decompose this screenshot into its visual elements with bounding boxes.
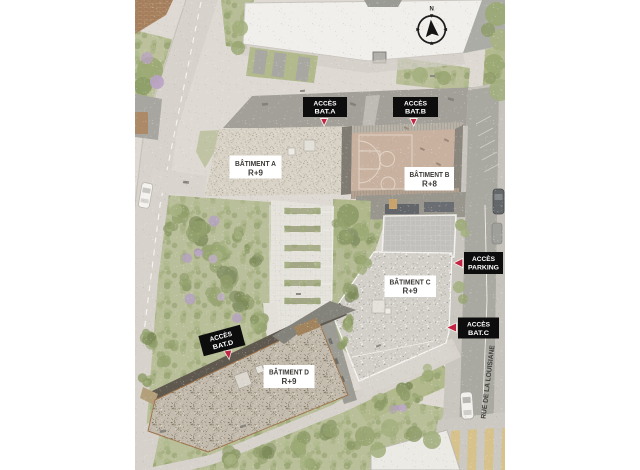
- svg-text:BÂTIMENT C: BÂTIMENT C: [390, 278, 431, 287]
- svg-text:PARKING: PARKING: [468, 265, 499, 272]
- svg-text:R+9: R+9: [282, 377, 297, 386]
- svg-text:BAT.C: BAT.C: [468, 330, 489, 337]
- svg-text:ACCÈS: ACCÈS: [472, 254, 496, 263]
- svg-text:BAT.B: BAT.B: [405, 109, 426, 116]
- svg-text:R+8: R+8: [422, 180, 437, 189]
- svg-text:R+9: R+9: [248, 169, 263, 178]
- svg-text:ACCÈS: ACCÈS: [314, 99, 338, 108]
- svg-text:BAT.A: BAT.A: [315, 109, 336, 116]
- svg-text:N: N: [430, 7, 434, 13]
- svg-text:ACCÈS: ACCÈS: [404, 99, 428, 108]
- svg-text:ACCÈS: ACCÈS: [467, 320, 491, 329]
- svg-text:BÂTIMENT B: BÂTIMENT B: [410, 170, 450, 179]
- svg-text:R+9: R+9: [403, 287, 418, 296]
- svg-text:BÂTIMENT D: BÂTIMENT D: [269, 368, 309, 377]
- svg-text:BÂTIMENT A: BÂTIMENT A: [235, 159, 276, 168]
